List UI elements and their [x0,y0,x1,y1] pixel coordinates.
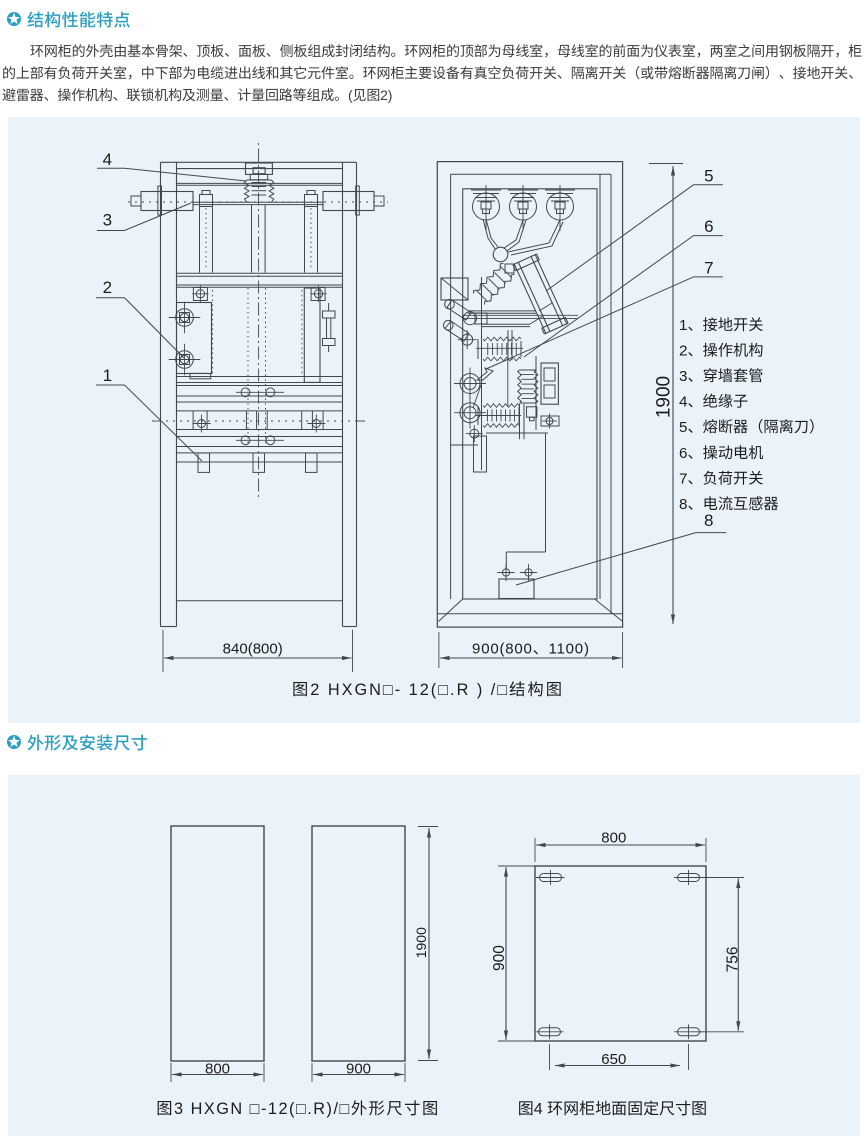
svg-text:8: 8 [704,511,713,530]
svg-text:800: 800 [205,1061,230,1078]
svg-text:1900: 1900 [413,927,429,958]
svg-text:8、电流互感器: 8、电流互感器 [679,496,779,513]
svg-text:900: 900 [346,1061,371,1078]
svg-text:4、绝缘子: 4、绝缘子 [679,394,748,411]
svg-text:3: 3 [103,211,112,230]
svg-text:6: 6 [704,217,713,236]
svg-text:5、熔断器（隔离刀）: 5、熔断器（隔离刀） [679,419,824,436]
svg-text:840(800): 840(800) [223,640,283,657]
svg-text:1900: 1900 [654,376,675,418]
svg-text:5: 5 [704,167,713,186]
svg-text:图2 HXGN□- 12(□.R ) /□结构图: 图2 HXGN□- 12(□.R ) /□结构图 [292,681,564,699]
svg-text:3、穿墙套管: 3、穿墙套管 [679,368,763,385]
svg-text:756: 756 [724,946,741,972]
svg-text:图4 环网柜地面固定尺寸图: 图4 环网柜地面固定尺寸图 [518,1100,707,1118]
svg-text:1、接地开关: 1、接地开关 [679,317,763,334]
svg-text:900: 900 [491,945,508,971]
svg-text:800: 800 [601,830,626,847]
svg-text:6、操动电机: 6、操动电机 [679,445,763,462]
svg-text:2: 2 [103,278,112,297]
svg-text:7、负荷开关: 7、负荷开关 [679,470,763,487]
svg-text:7: 7 [704,259,713,278]
svg-text:1: 1 [103,366,112,385]
svg-text:2、操作机构: 2、操作机构 [679,343,763,360]
svg-text:900(800、1100): 900(800、1100) [472,640,590,657]
svg-text:图3 HXGN □-12(□.R)/□外形尺寸图: 图3 HXGN □-12(□.R)/□外形尺寸图 [156,1100,440,1118]
svg-text:650: 650 [601,1051,626,1068]
svg-text:4: 4 [103,150,112,169]
